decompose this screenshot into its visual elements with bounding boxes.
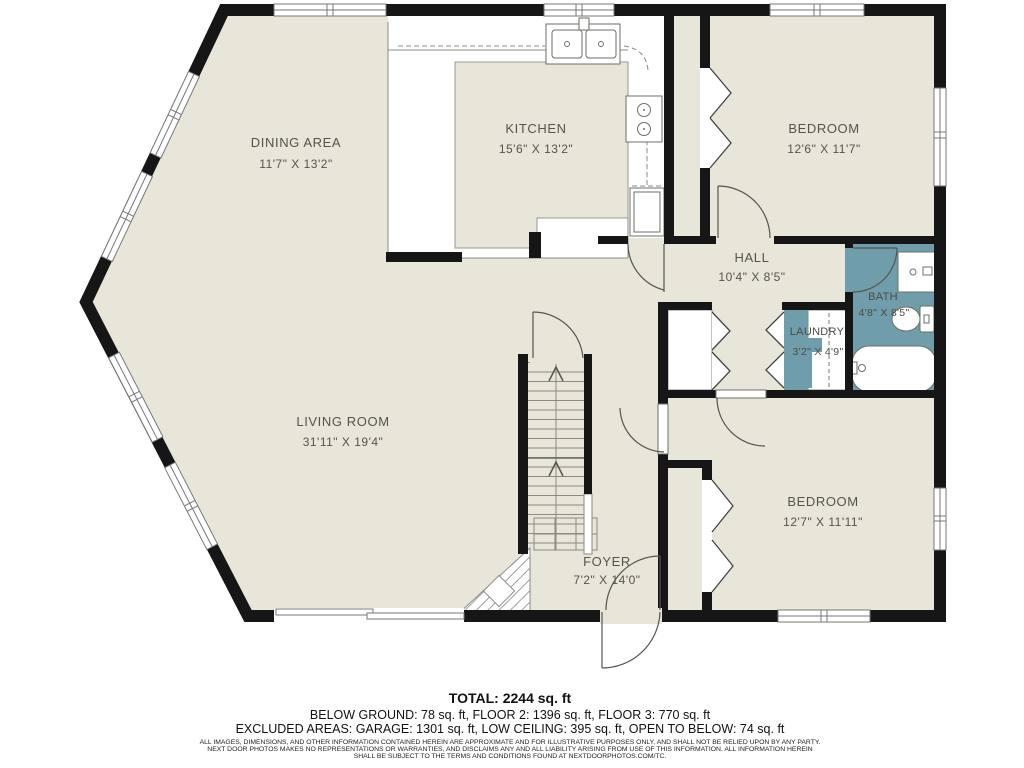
disclaimer-line-2: NEXT DOOR PHOTOS MAKES NO REPRESENTATION… xyxy=(207,746,812,753)
window xyxy=(770,4,864,16)
disclaimer-line-1: ALL IMAGES, DIMENSIONS, AND OTHER INFORM… xyxy=(200,739,821,746)
room-label-kitchen-name: KITCHEN xyxy=(505,121,566,136)
window xyxy=(934,88,946,186)
room-label-bedroom1-dims: 12'6" X 11'7" xyxy=(787,142,860,156)
window xyxy=(274,4,386,16)
room-label-bedroom2-name: BEDROOM xyxy=(787,494,858,509)
bathtub xyxy=(851,346,936,392)
disclaimer-line-3: SHALL BE SUBJECT TO THE TERMS AND CONDIT… xyxy=(354,753,667,760)
area-summary: TOTAL: 2244 sq. ft BELOW GROUND: 78 sq. … xyxy=(200,690,821,760)
room-label-bath-dims: 4'8" X 8'5" xyxy=(859,307,910,319)
room-label-living-dims: 31'11" X 19'4" xyxy=(303,435,384,449)
room-label-hall-name: HALL xyxy=(735,250,770,265)
stair-door-opening xyxy=(530,352,584,364)
window xyxy=(934,488,946,550)
total-area-text: TOTAL: 2244 sq. ft xyxy=(449,690,572,706)
bath-vanity xyxy=(898,252,936,292)
floorplan-page: DINING AREA 11'7" X 13'2" KITCHEN 15'6" … xyxy=(0,0,1024,768)
room-label-foyer-name: FOYER xyxy=(583,554,631,569)
room-label-bath-name: BATH xyxy=(868,291,898,303)
room-label-bedroom2-dims: 12'7" X 11'11" xyxy=(783,515,863,529)
excluded-areas-text: EXCLUDED AREAS: GARAGE: 1301 sq. ft, LOW… xyxy=(236,722,785,736)
room-label-hall-dims: 10'4" X 8'5" xyxy=(718,270,785,284)
stair-railing xyxy=(584,494,592,554)
floor-areas-text: BELOW GROUND: 78 sq. ft, FLOOR 2: 1396 s… xyxy=(310,708,711,722)
hall-closet xyxy=(668,310,712,390)
window xyxy=(544,4,614,16)
sliding-door xyxy=(274,608,464,624)
bath-door-opening xyxy=(845,248,853,292)
room-label-dining-dims: 11'7" X 13'2" xyxy=(259,157,332,171)
room-label-laundry-name: LAUNDRY xyxy=(790,326,845,338)
floorplan-svg: DINING AREA 11'7" X 13'2" KITCHEN 15'6" … xyxy=(0,0,1024,768)
room-label-dining-name: DINING AREA xyxy=(251,135,341,150)
window xyxy=(778,610,870,622)
kitchen-sink xyxy=(546,18,620,64)
room-label-foyer-dims: 7'2" X 14'0" xyxy=(573,573,640,587)
room-label-living-name: LIVING ROOM xyxy=(296,414,389,429)
bedroom2-closet-opening xyxy=(702,480,712,592)
bedroom1-closet-opening xyxy=(700,68,710,168)
room-label-bedroom1-name: BEDROOM xyxy=(788,121,859,136)
room-label-kitchen-dims: 15'6" X 13'2" xyxy=(499,142,573,156)
stove xyxy=(626,96,662,142)
room-label-laundry-dims: 3'2" X 4'9" xyxy=(793,346,844,358)
refrigerator xyxy=(630,188,664,236)
staircase xyxy=(528,362,592,554)
entry-door-opening xyxy=(600,608,662,624)
kitchen-counters xyxy=(388,16,664,258)
